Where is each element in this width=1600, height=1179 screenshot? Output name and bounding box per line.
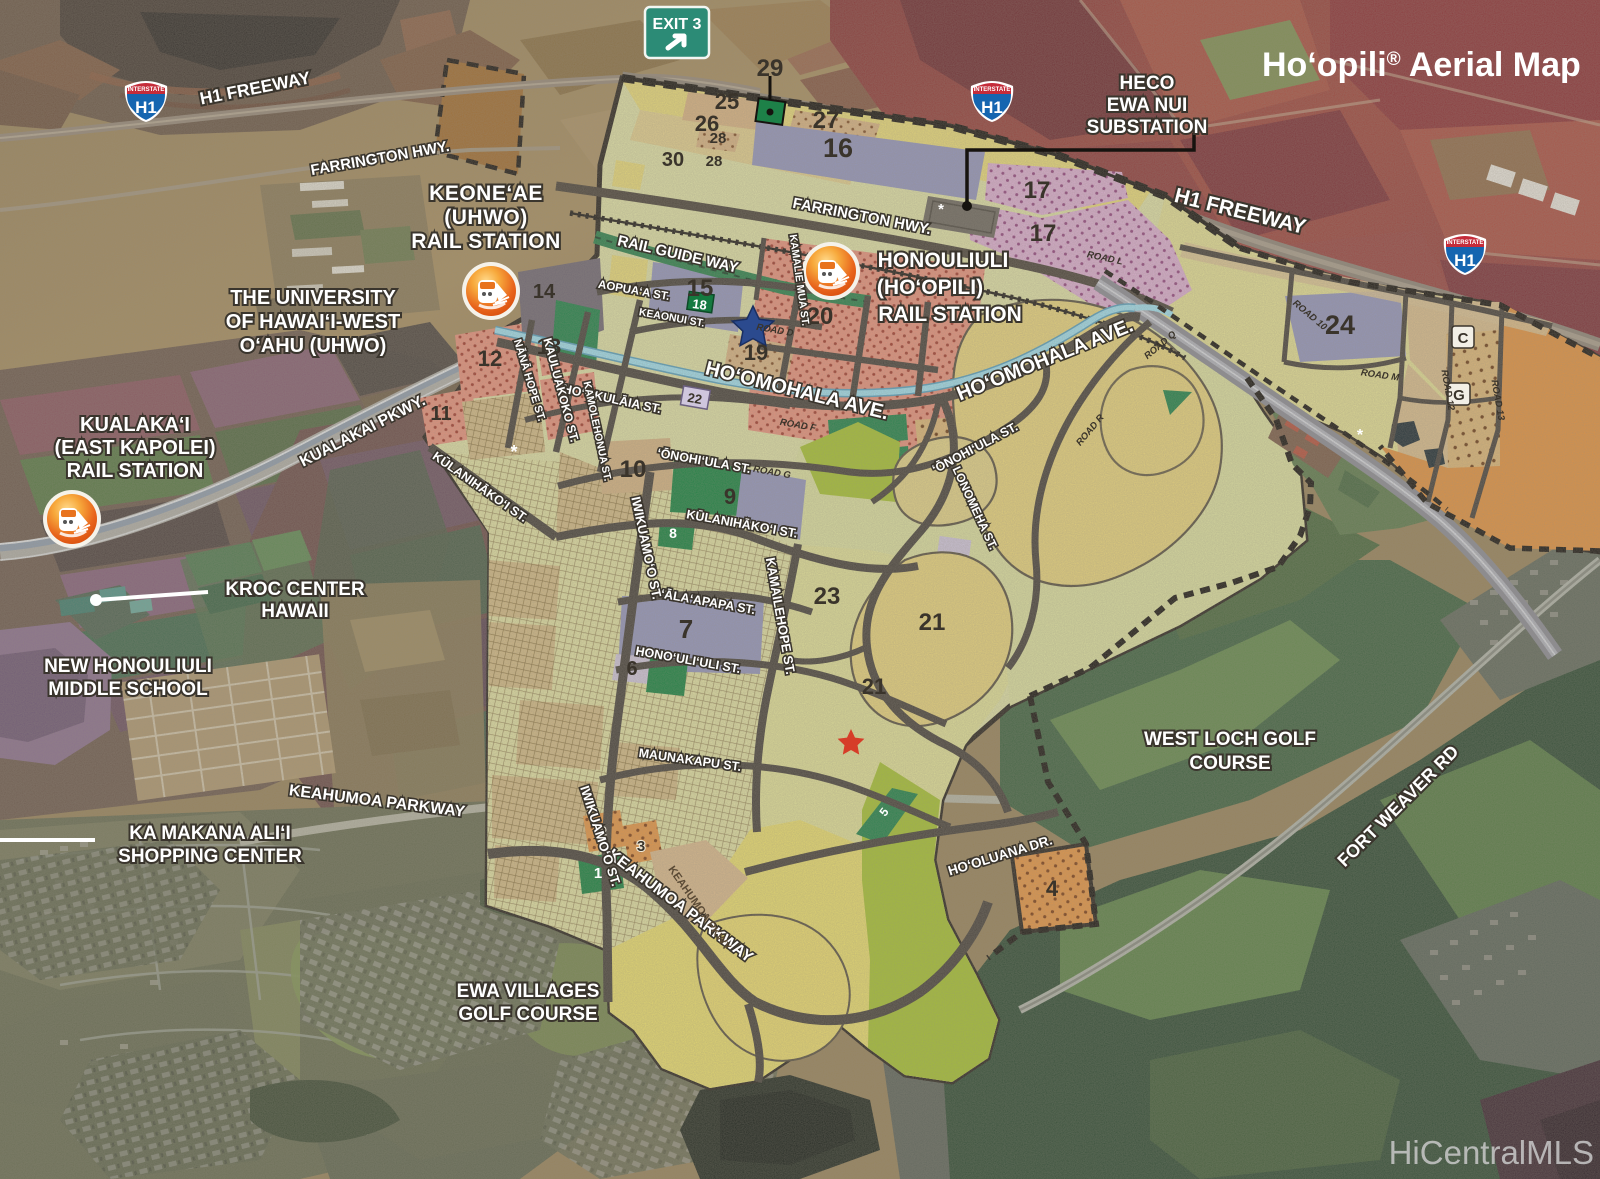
svg-text:6: 6: [626, 658, 637, 680]
svg-text:17: 17: [1030, 220, 1057, 247]
svg-text:MIDDLE SCHOOL: MIDDLE SCHOOL: [48, 679, 208, 700]
svg-text:16: 16: [823, 133, 853, 163]
svg-text:9: 9: [724, 484, 736, 509]
svg-text:28: 28: [710, 130, 727, 147]
svg-text:THE UNIVERSITY: THE UNIVERSITY: [230, 287, 396, 309]
svg-text:11: 11: [430, 403, 451, 425]
svg-text:22: 22: [686, 390, 703, 407]
svg-text:21: 21: [862, 674, 886, 699]
svg-text:28: 28: [706, 153, 723, 170]
svg-text:HAWAII: HAWAII: [261, 601, 329, 622]
svg-text:HECO: HECO: [1120, 73, 1175, 94]
svg-text:*: *: [510, 442, 517, 462]
svg-text:EXIT 3: EXIT 3: [653, 16, 702, 33]
svg-text:RAIL STATION: RAIL STATION: [67, 460, 204, 482]
svg-text:Ho‘opili® Aerial Map: Ho‘opili® Aerial Map: [1262, 46, 1581, 84]
svg-text:10: 10: [620, 456, 647, 483]
svg-text:(HO‘OPILI): (HO‘OPILI): [877, 276, 983, 299]
svg-text:O‘AHU (UHWO): O‘AHU (UHWO): [240, 335, 387, 357]
svg-text:INTERSTATE: INTERSTATE: [128, 87, 165, 93]
svg-text:24: 24: [1325, 310, 1355, 340]
svg-text:WEST LOCH GOLF: WEST LOCH GOLF: [1144, 729, 1316, 750]
svg-text:KA MAKANA ALI‘I: KA MAKANA ALI‘I: [129, 823, 290, 844]
svg-text:1: 1: [594, 865, 602, 882]
svg-text:21: 21: [919, 609, 946, 636]
svg-text:GOLF COURSE: GOLF COURSE: [458, 1004, 597, 1025]
svg-text:RAIL STATION: RAIL STATION: [411, 230, 561, 253]
svg-text:(UHWO): (UHWO): [444, 206, 527, 229]
svg-text:HONOULIULI: HONOULIULI: [878, 249, 1009, 272]
svg-text:27: 27: [813, 107, 840, 134]
svg-text:RAIL STATION: RAIL STATION: [878, 303, 1022, 326]
svg-text:SHOPPING CENTER: SHOPPING CENTER: [118, 846, 302, 867]
svg-text:OF HAWAI‘I-WEST: OF HAWAI‘I-WEST: [226, 311, 400, 333]
svg-text:*: *: [1357, 427, 1364, 444]
svg-text:17: 17: [1024, 177, 1051, 204]
svg-text:14: 14: [533, 281, 556, 303]
svg-text:30: 30: [662, 149, 684, 171]
svg-text:NEW HONOULIULI: NEW HONOULIULI: [44, 656, 212, 677]
svg-text:EWA VILLAGES: EWA VILLAGES: [457, 981, 600, 1002]
svg-text:19: 19: [744, 340, 768, 365]
svg-text:29: 29: [757, 55, 784, 82]
svg-text:H1: H1: [135, 98, 157, 117]
svg-text:KEONE‘AE: KEONE‘AE: [429, 182, 543, 205]
svg-text:4: 4: [1046, 876, 1059, 901]
svg-text:23: 23: [814, 583, 841, 610]
svg-text:C: C: [1458, 330, 1469, 347]
svg-text:HiCentralMLS: HiCentralMLS: [1389, 1134, 1594, 1171]
svg-text:3: 3: [637, 838, 645, 855]
svg-text:*: *: [938, 201, 944, 218]
svg-text:(EAST KAPOLEI): (EAST KAPOLEI): [54, 437, 215, 459]
svg-text:12: 12: [478, 346, 502, 371]
svg-text:KUALAKA‘I: KUALAKA‘I: [80, 414, 190, 436]
svg-text:7: 7: [679, 614, 693, 644]
svg-text:COURSE: COURSE: [1189, 753, 1270, 774]
svg-text:15: 15: [687, 275, 714, 302]
svg-text:SUBSTATION: SUBSTATION: [1087, 117, 1208, 138]
svg-text:KROC CENTER: KROC CENTER: [225, 579, 365, 600]
svg-text:EWA NUI: EWA NUI: [1107, 95, 1188, 116]
svg-text:8: 8: [669, 525, 677, 541]
